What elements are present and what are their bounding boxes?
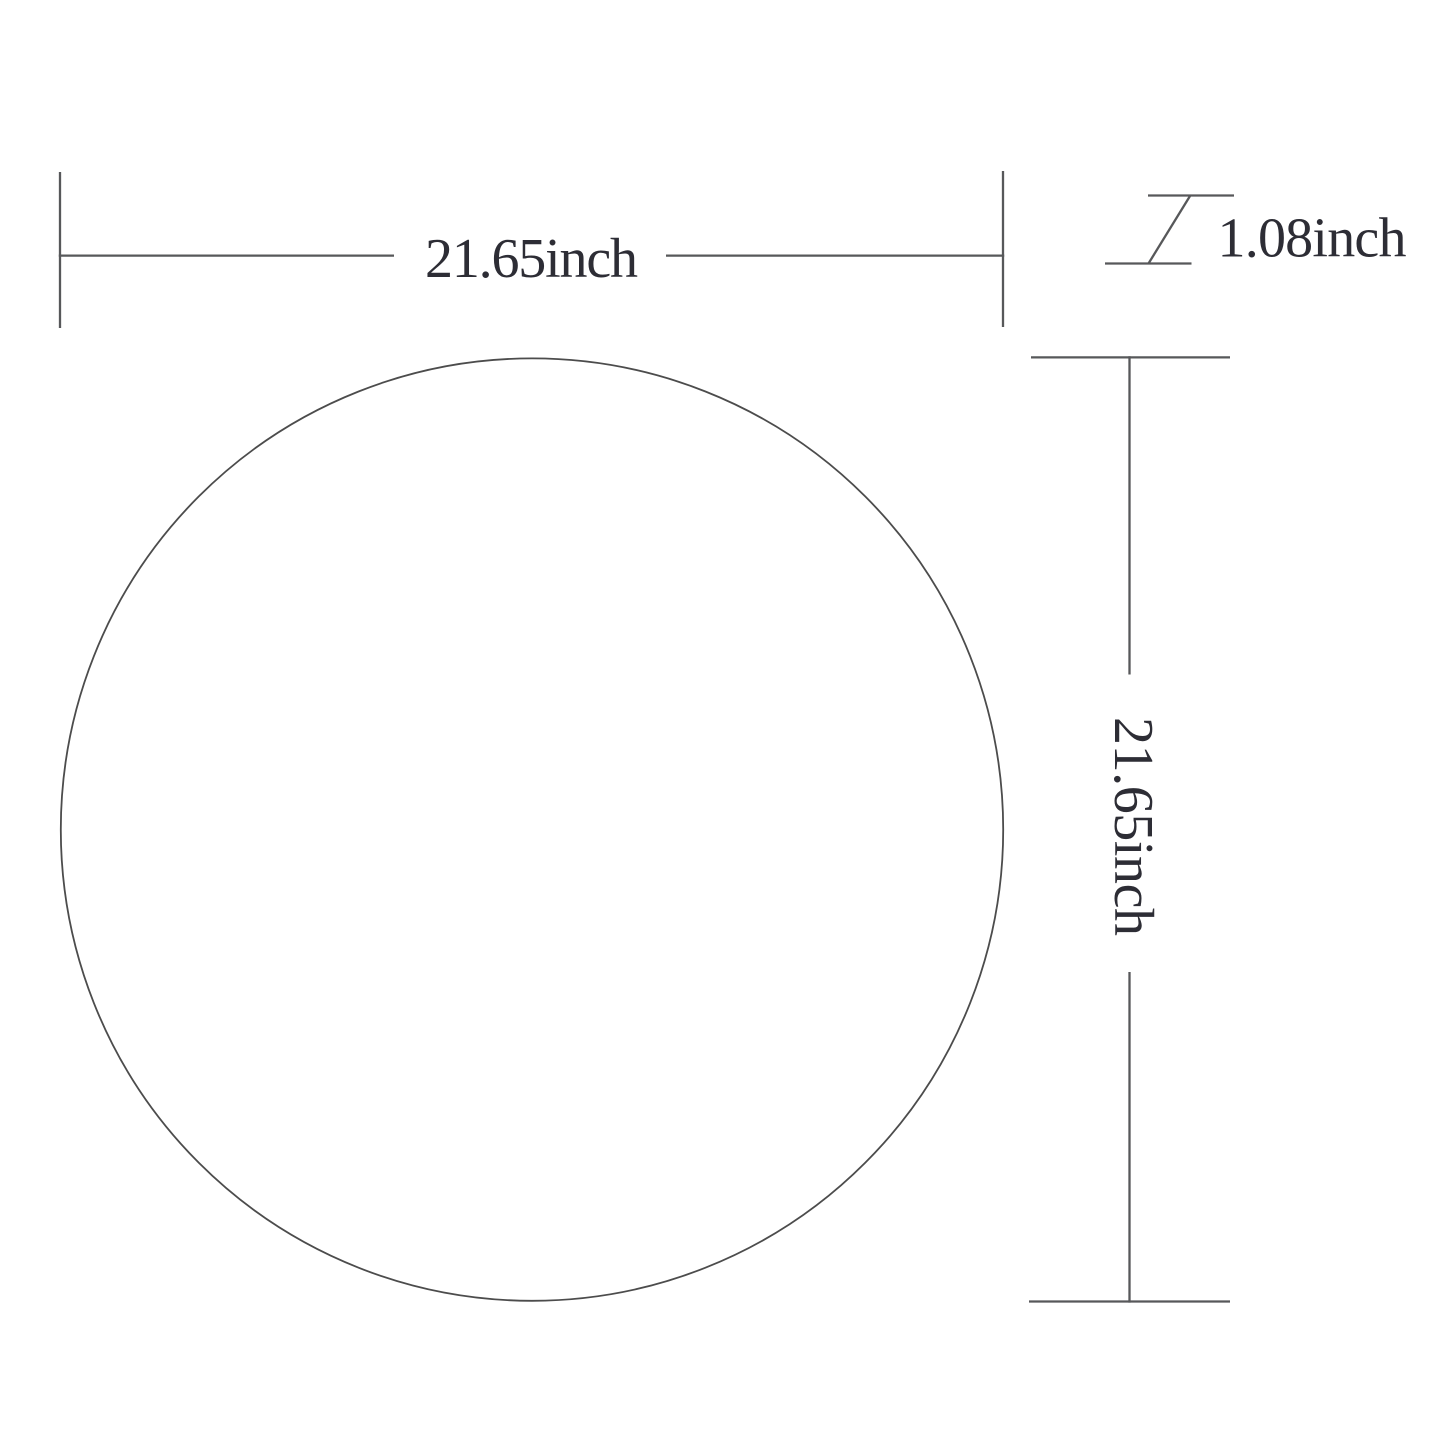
svg-text:21.65inch: 21.65inch <box>1102 717 1164 936</box>
svg-text:21.65inch: 21.65inch <box>425 228 638 290</box>
svg-text:1.08inch: 1.08inch <box>1218 207 1407 269</box>
